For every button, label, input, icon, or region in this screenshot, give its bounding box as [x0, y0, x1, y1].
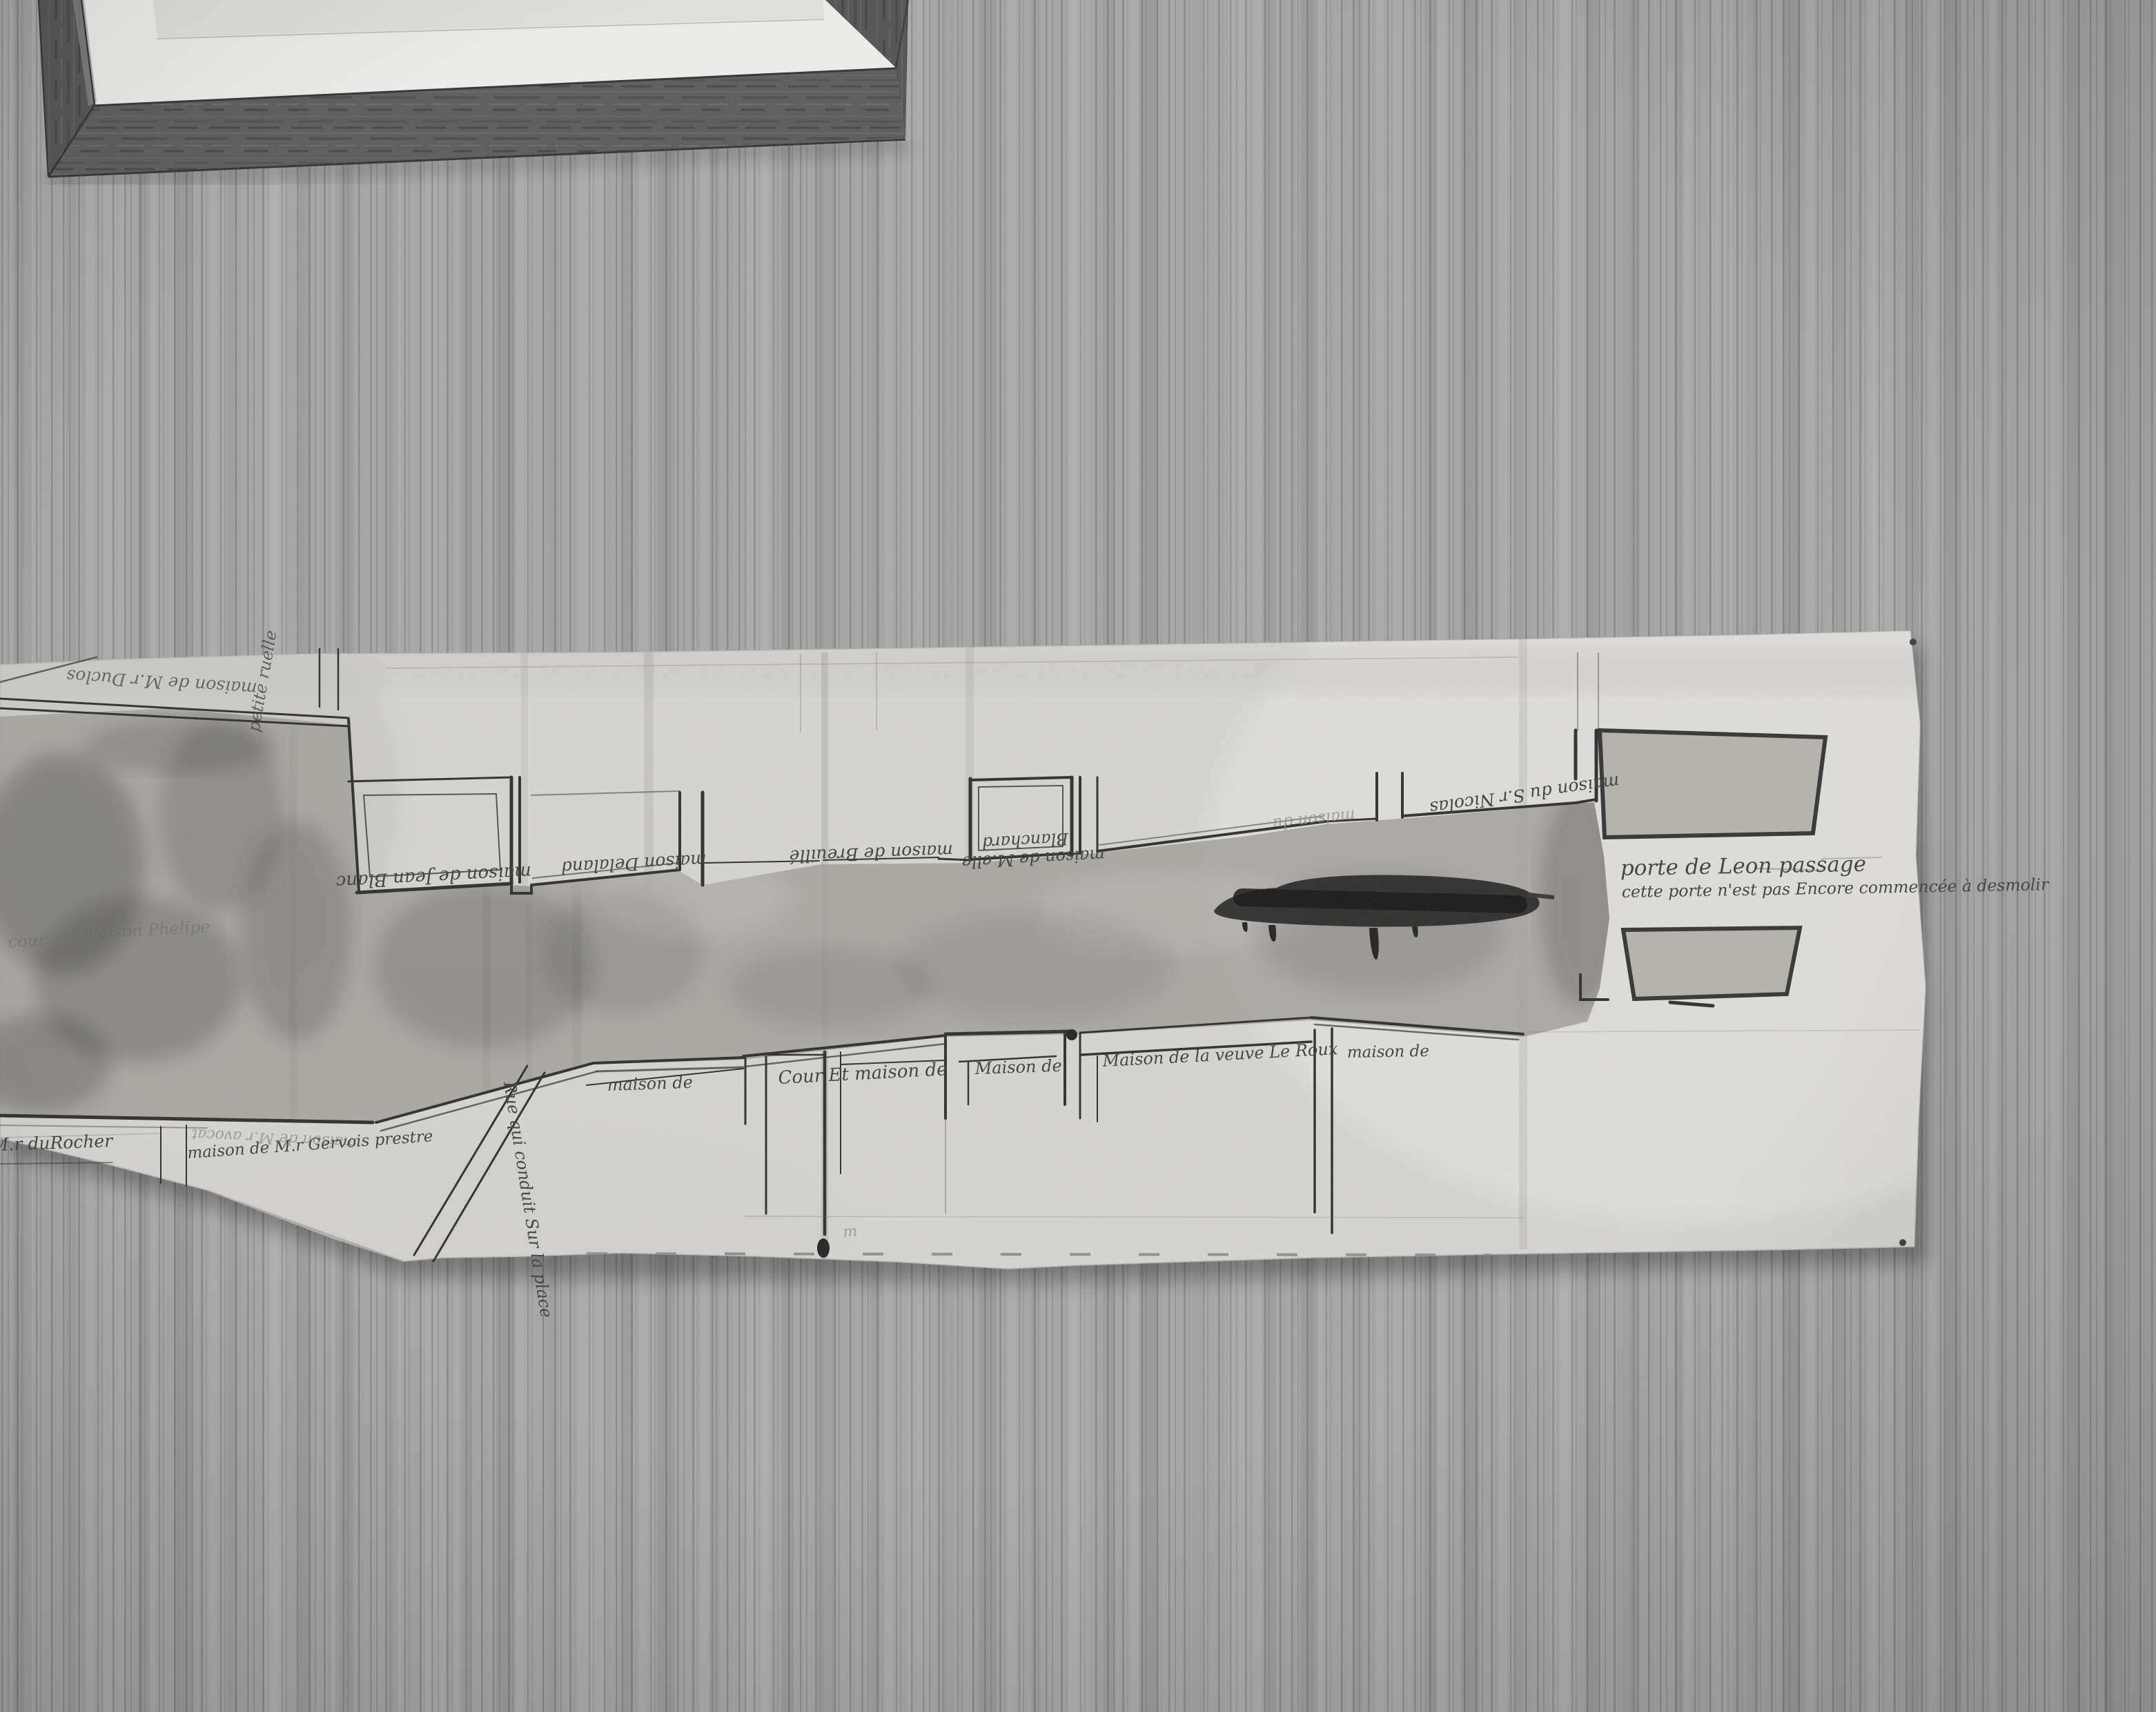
plan-photo-canvas: maison de M.r Duclos petite ruelle maiso… [0, 0, 2156, 1712]
photograph-scene: maison de M.r Duclos petite ruelle maiso… [0, 0, 2156, 1712]
vignette-overlay [0, 0, 2156, 1712]
